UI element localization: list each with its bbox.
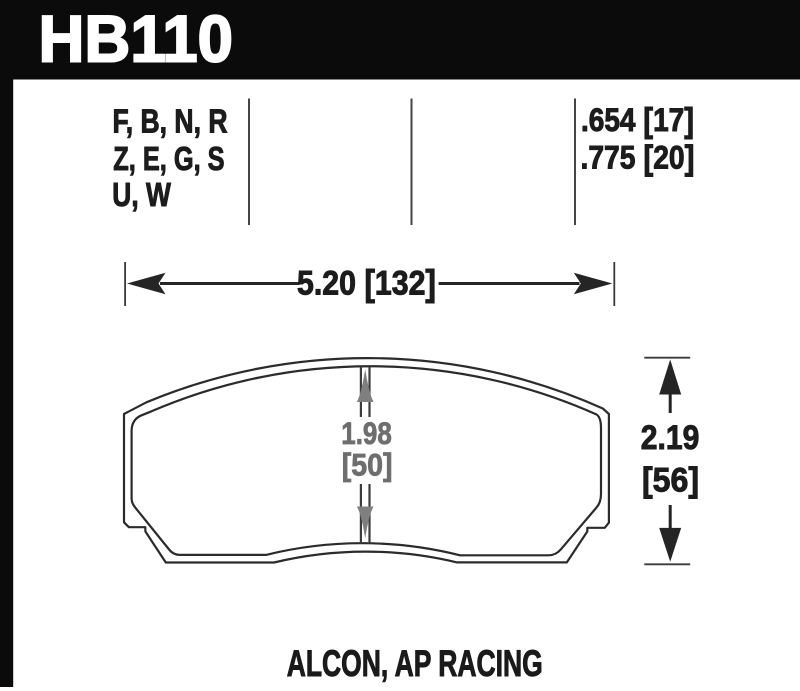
- svg-text:U, W: U, W: [112, 177, 171, 214]
- svg-text:[50]: [50]: [342, 448, 393, 483]
- svg-text:2.19: 2.19: [641, 419, 700, 457]
- svg-text:HB110: HB110: [39, 3, 234, 76]
- svg-text:[56]: [56]: [642, 462, 699, 500]
- svg-text:Z, E, G, S: Z, E, G, S: [113, 141, 224, 178]
- svg-text:1.98: 1.98: [341, 416, 392, 451]
- svg-text:.654 [17]: .654 [17]: [581, 101, 694, 140]
- svg-text:F, B, N, R: F, B, N, R: [113, 104, 228, 141]
- svg-text:.775 [20]: .775 [20]: [581, 139, 695, 178]
- svg-text:5.20 [132]: 5.20 [132]: [297, 264, 436, 304]
- svg-text:ALCON, AP RACING: ALCON, AP RACING: [287, 643, 543, 684]
